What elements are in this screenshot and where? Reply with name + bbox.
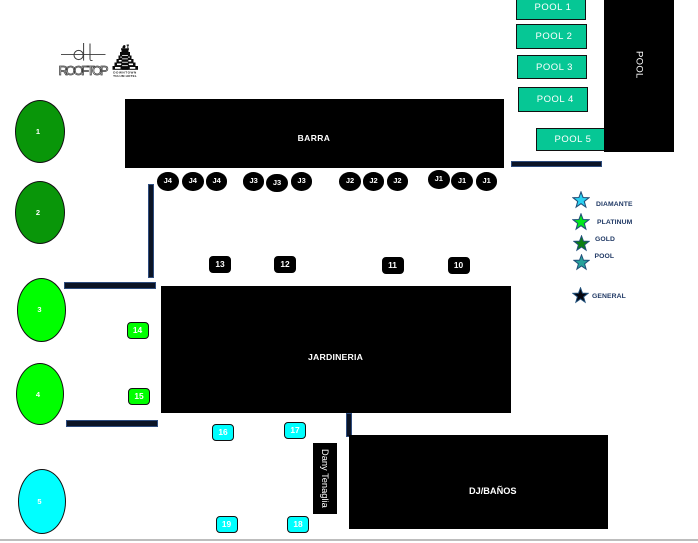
svg-text:TULUM HOTEL: TULUM HOTEL xyxy=(113,74,137,78)
svg-text:ROOFTOP: ROOFTOP xyxy=(59,63,109,78)
